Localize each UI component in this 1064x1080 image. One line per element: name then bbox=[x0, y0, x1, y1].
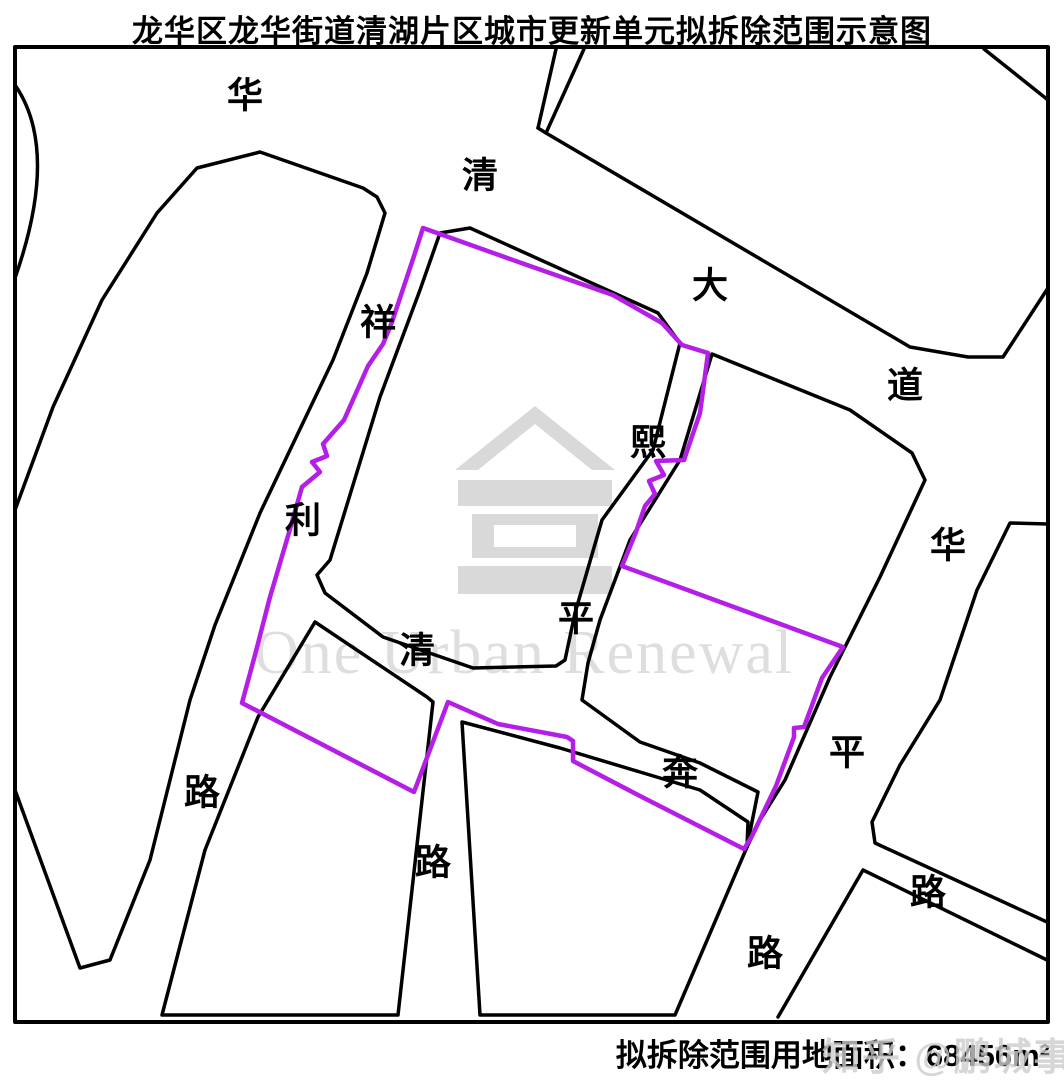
road-label-奔路-12: 奔 bbox=[662, 752, 699, 793]
huaping-road-east-edge bbox=[872, 523, 1048, 922]
road-label-华平路-14: 平 bbox=[829, 732, 865, 773]
northeast-corner-cut bbox=[984, 49, 1048, 100]
southwest-block-outline bbox=[162, 622, 433, 1015]
central-block-outline bbox=[317, 228, 680, 668]
road-label-祥利路-6: 路 bbox=[184, 772, 221, 813]
road-label-熙平路-11: 路 bbox=[747, 933, 784, 974]
road-label-华清大道-0: 华 bbox=[227, 75, 263, 116]
corner-watermark-text: 知乎 @鹏城事记 bbox=[822, 1026, 1064, 1080]
road-label-华平路-15: 路 bbox=[910, 872, 947, 913]
road-label-祥利路-5: 利 bbox=[285, 500, 321, 541]
huaqing-avenue-north-edge bbox=[538, 128, 1048, 357]
demolition-map-page: One Urban Renewal 华清大道祥利路清路熙平路奔华平路 龙华区龙华… bbox=[0, 0, 1064, 1080]
road-label-华清大道-2: 大 bbox=[692, 265, 728, 306]
road-label-熙平路-9: 熙 bbox=[630, 422, 666, 463]
road-label-清平路-7: 清 bbox=[399, 630, 435, 671]
road-label-清平路-8: 路 bbox=[415, 842, 452, 883]
road-label-华清大道-1: 清 bbox=[462, 155, 498, 196]
map-canvas: 华清大道祥利路清路熙平路奔华平路 bbox=[0, 0, 1064, 1080]
road-label-熙平路-10: 平 bbox=[558, 598, 594, 639]
map-border bbox=[15, 47, 1048, 1022]
road-label-华清大道-3: 道 bbox=[887, 365, 923, 406]
road-label-祥利路-4: 祥 bbox=[360, 302, 396, 343]
corner-arc-northwest bbox=[15, 85, 38, 278]
road-label-华平路-13: 华 bbox=[930, 525, 966, 566]
proposed-demolition-boundary bbox=[242, 228, 843, 849]
